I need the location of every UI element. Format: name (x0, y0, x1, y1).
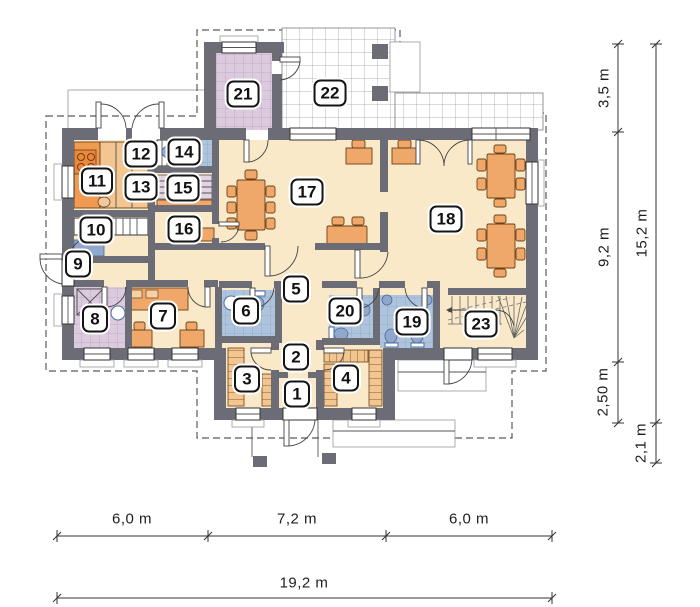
desk (346, 148, 372, 164)
room-badge-8: 8 (82, 306, 108, 333)
room-badge-9: 9 (65, 251, 91, 278)
room-badge-2: 2 (283, 344, 309, 371)
room-badge-21: 21 (227, 81, 260, 108)
desk (392, 148, 418, 164)
washbasin (382, 295, 392, 305)
eave-lines (68, 90, 207, 128)
room-badge-20: 20 (329, 298, 362, 325)
room-badge-12: 12 (125, 141, 158, 168)
washbasin (111, 306, 125, 320)
table (327, 226, 367, 245)
table (487, 154, 515, 198)
dim-bottom-total: 19,2 m (280, 575, 329, 592)
room-badge-5: 5 (283, 276, 309, 303)
room-badge-6: 6 (233, 298, 259, 325)
table (487, 224, 515, 268)
room-badge-1: 1 (284, 381, 310, 408)
room-badge-23: 23 (465, 311, 498, 338)
room-badge-7: 7 (150, 303, 176, 330)
room-badge-4: 4 (333, 365, 359, 392)
terrace-pillar (372, 86, 388, 101)
floor-plan-image: 1234567891011121314151617181920212223 6,… (0, 0, 700, 607)
dim-right-extra: 2,1 m (633, 423, 650, 463)
room-badge-22: 22 (314, 80, 347, 107)
dining-table (237, 180, 265, 230)
desk (180, 330, 204, 347)
dim-right-total: 15,2 m (634, 209, 651, 258)
room-badge-14: 14 (168, 139, 201, 166)
dim-right-segment-3: 2,50 m (595, 368, 612, 417)
dim-bottom-segment-1: 6,0 m (112, 511, 152, 528)
room-badge-17: 17 (291, 179, 324, 206)
room-badge-15: 15 (167, 175, 200, 202)
room-badge-3: 3 (234, 366, 260, 393)
dim-bottom-segment-3: 6,0 m (449, 511, 489, 528)
wardrobe (369, 350, 382, 406)
entry-porch-side (398, 360, 486, 391)
room-badge-10: 10 (80, 217, 113, 244)
kitchen-sink (98, 197, 110, 207)
dim-right-segment-1: 3,5 m (596, 68, 613, 108)
terrace-pillar (372, 44, 388, 59)
room-badge-16: 16 (168, 216, 201, 243)
dim-right-segment-2: 9,2 m (596, 227, 613, 267)
dim-bottom-segment-2: 7,2 m (277, 511, 317, 528)
room-badge-11: 11 (81, 168, 113, 195)
room-badge-13: 13 (125, 174, 158, 201)
room-badge-18: 18 (430, 206, 463, 233)
room-badge-19: 19 (396, 309, 429, 336)
